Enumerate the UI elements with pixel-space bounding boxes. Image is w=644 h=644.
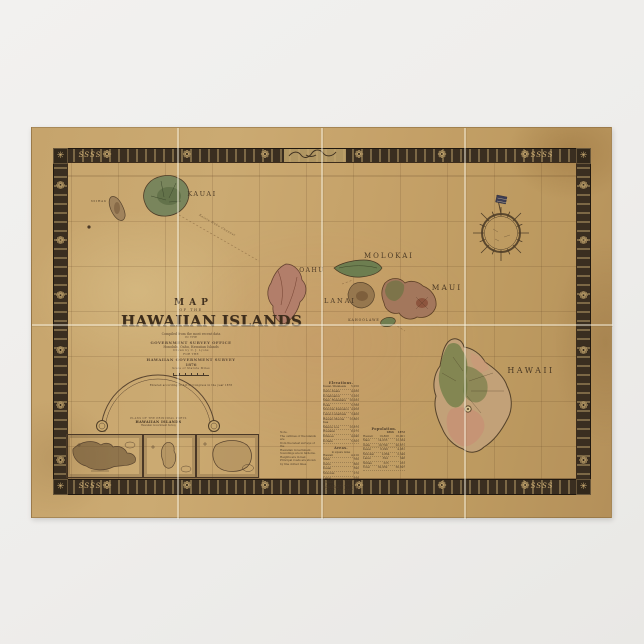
population-table: Population. 1866 1872 Hawaii19,80816,001… bbox=[363, 427, 405, 471]
border-scrollwork: SSSS bbox=[528, 150, 556, 160]
row-name: Molokai bbox=[323, 472, 334, 476]
map-paper: ✳ ✳ ✳ ✳ SSSS SSSS SSSS SSSS ❁❁❁❁❁❁❁❁❁❁❁❁… bbox=[31, 127, 612, 518]
inset-arch-captions: PLANS OF THE PRINCIPAL PORTS HAWAIIAN IS… bbox=[101, 417, 216, 427]
note-line: by fine dotted lines. bbox=[280, 463, 320, 467]
row-name: Total bbox=[363, 466, 370, 470]
scale-bar bbox=[173, 373, 209, 376]
border-corner-ornament-icon: ✳ bbox=[53, 148, 68, 164]
row-name: Kilauea bbox=[323, 435, 334, 439]
row-name: Hawaii–Mauna Kea bbox=[323, 418, 349, 425]
inset-box-honolulu bbox=[66, 434, 143, 478]
row-value: 270 bbox=[354, 472, 359, 476]
inset-arch-subtitle: Hawaiian Government Survey bbox=[101, 424, 216, 427]
border-scrollwork: SSSS bbox=[76, 150, 104, 160]
scale-caption: Scale of Statute Miles bbox=[121, 367, 261, 371]
table-row: Kohala5,505 bbox=[323, 440, 359, 445]
row-value-1866: 62,959 bbox=[376, 466, 387, 470]
row-value: 13,805 bbox=[349, 418, 359, 425]
hawaiian-islands-map-poster: ✳ ✳ ✳ ✳ SSSS SSSS SSSS SSSS ❁❁❁❁❁❁❁❁❁❁❁❁… bbox=[0, 0, 644, 644]
title-cartouche: MAP OF THE HAWAIIAN ISLANDS Compiled fro… bbox=[121, 298, 261, 387]
title-attribution: Compiled from the most recent data IN TH… bbox=[121, 332, 261, 371]
border-band-bottom bbox=[53, 479, 591, 495]
border-band-right bbox=[576, 148, 591, 495]
copyright-line: Entered according to Act of Congress in … bbox=[121, 384, 261, 387]
map-title: HAWAIIAN ISLANDS bbox=[121, 313, 261, 329]
row-name: Kahoolawe bbox=[323, 486, 339, 490]
note-block: Note.The outlines of the islands arefrom… bbox=[280, 431, 320, 466]
title-map-word: MAP bbox=[121, 298, 261, 308]
border-worn-patch bbox=[284, 149, 346, 162]
border-scrollwork: SSSS bbox=[528, 481, 556, 491]
table-row: Kahoolawe63 bbox=[323, 486, 359, 491]
table-row: Total62,95956,897 bbox=[363, 466, 405, 471]
row-value: 5,505 bbox=[351, 440, 359, 444]
border-corner-ornament-icon: ✳ bbox=[576, 148, 591, 164]
row-value-1872: 56,897 bbox=[394, 466, 405, 470]
inset-box-hilo bbox=[196, 434, 259, 478]
inset-box-lahaina bbox=[143, 434, 196, 478]
border-corner-ornament-icon: ✳ bbox=[576, 479, 591, 495]
row-value: 63 bbox=[355, 486, 359, 490]
row-value: 4,040 bbox=[351, 435, 359, 439]
border-corner-ornament-icon: ✳ bbox=[53, 479, 68, 495]
row-name: Kohala bbox=[323, 440, 333, 444]
elevations-table: Elevations. Kauai–Waialeale5,250Oahu–Kaa… bbox=[323, 381, 359, 490]
border-scrollwork: SSSS bbox=[76, 481, 104, 491]
